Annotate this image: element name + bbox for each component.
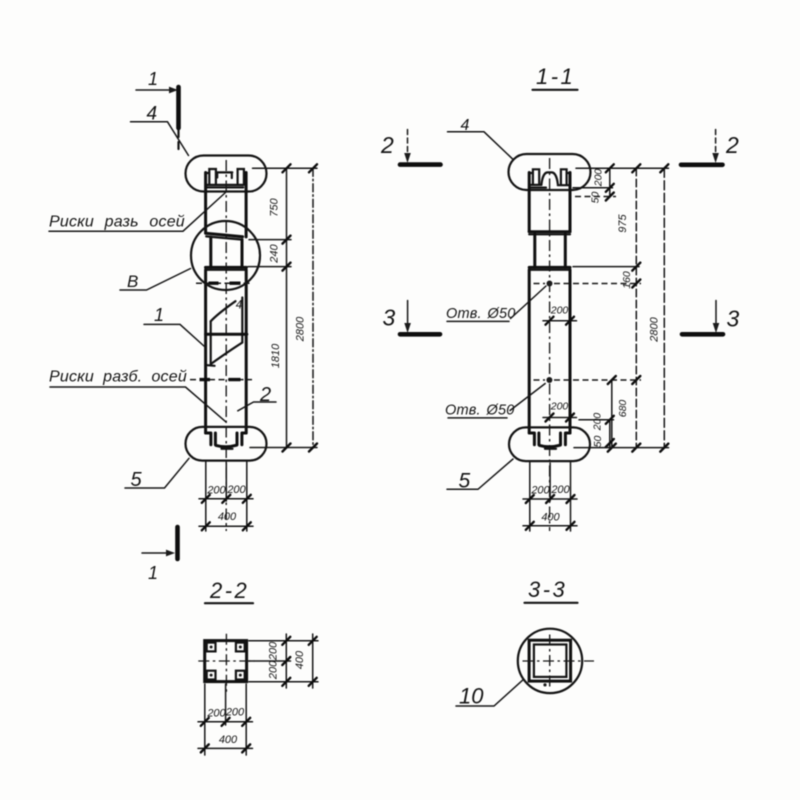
svg-text:400: 400	[219, 734, 238, 746]
svg-text:Риски разь осей: Риски разь осей	[49, 214, 185, 231]
svg-text:1: 1	[154, 305, 164, 325]
svg-text:50: 50	[592, 436, 604, 448]
svg-text:Риски разб. осей: Риски разб. осей	[49, 369, 187, 386]
svg-text:160: 160	[621, 271, 633, 289]
svg-text:Отв. Ø50: Отв. Ø50	[445, 403, 515, 419]
svg-text:200: 200	[206, 485, 226, 497]
svg-text:2-2: 2-2	[209, 578, 249, 603]
svg-text:1: 1	[148, 69, 158, 89]
svg-text:200: 200	[225, 707, 245, 719]
svg-text:Отв. Ø50: Отв. Ø50	[446, 306, 516, 322]
svg-text:3: 3	[383, 305, 396, 331]
svg-text:1810: 1810	[270, 343, 282, 368]
svg-text:200: 200	[530, 485, 550, 497]
svg-text:1-1: 1-1	[536, 64, 575, 89]
svg-text:200: 200	[206, 708, 226, 720]
svg-text:680: 680	[617, 400, 629, 418]
svg-text:200: 200	[592, 413, 604, 432]
svg-text:400: 400	[294, 650, 306, 669]
svg-text:50: 50	[590, 192, 602, 204]
svg-text:750: 750	[269, 197, 281, 216]
svg-text:2800: 2800	[649, 316, 661, 342]
svg-text:2: 2	[725, 132, 739, 158]
svg-text:2800: 2800	[295, 316, 307, 342]
svg-text:400: 400	[541, 512, 560, 524]
svg-text:200: 200	[550, 484, 570, 496]
svg-text:200: 200	[550, 401, 569, 413]
svg-text:200: 200	[226, 484, 246, 496]
svg-text:1: 1	[148, 563, 158, 583]
svg-text:3: 3	[727, 306, 740, 332]
svg-text:2: 2	[380, 132, 394, 158]
svg-text:200: 200	[268, 660, 280, 680]
svg-text:10: 10	[459, 684, 484, 709]
svg-text:400: 400	[218, 511, 237, 523]
svg-text:3-3: 3-3	[528, 577, 567, 602]
svg-text:200: 200	[268, 641, 280, 661]
svg-text:975: 975	[617, 213, 629, 232]
svg-text:240: 240	[269, 243, 281, 263]
svg-text:200: 200	[593, 169, 605, 188]
svg-text:200: 200	[550, 305, 569, 317]
svg-text:В: В	[127, 272, 138, 291]
